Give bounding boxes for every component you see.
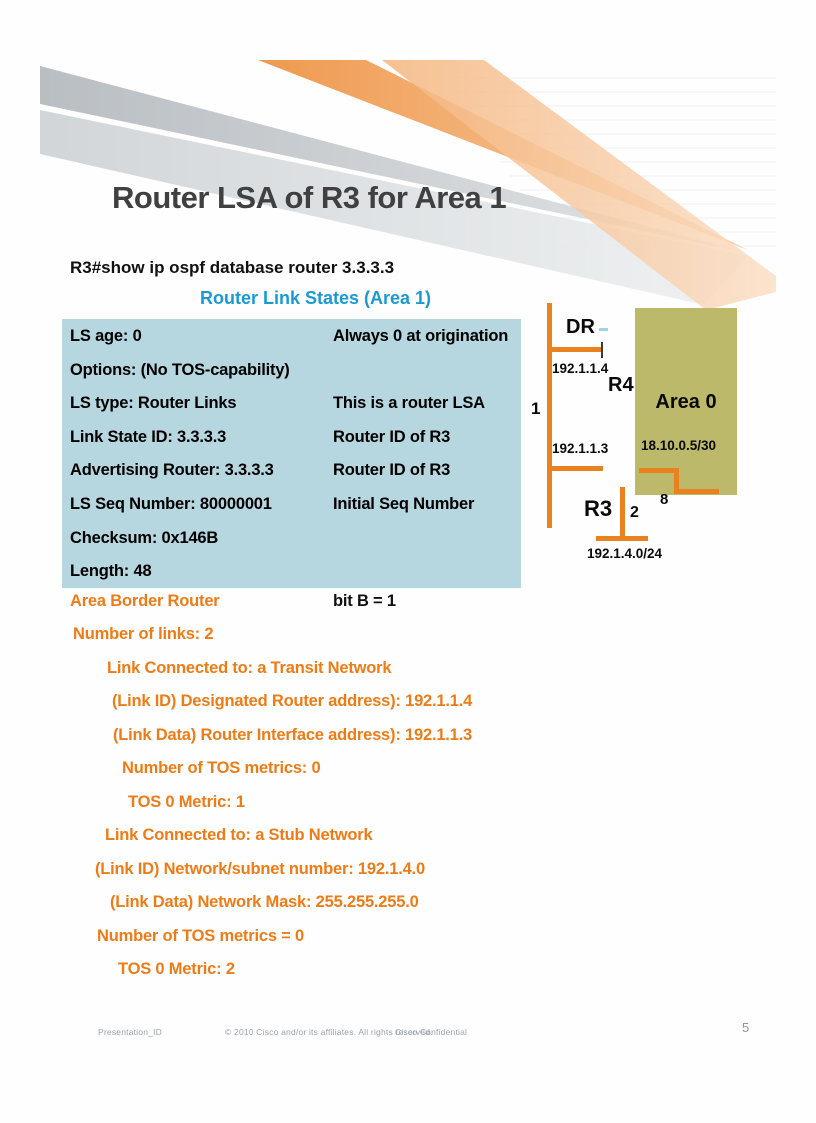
lsa-field: LS age: 0 xyxy=(70,327,333,361)
lsa-annotation: Router ID of R3 xyxy=(333,428,521,462)
dr-label: DR xyxy=(566,316,595,339)
footer-presentation-id: Presentation_ID xyxy=(98,1027,162,1037)
lsa-detail-line: Number of TOS metrics: 0 xyxy=(122,759,320,778)
lsa-detail-line: Number of links: 2 xyxy=(73,625,213,644)
lsa-annotation xyxy=(333,361,521,395)
transit-segment-line xyxy=(547,303,552,528)
slide: Router LSA of R3 for Area 1 R3#show ip o… xyxy=(0,0,816,1123)
dr-ip-label: 192.1.1.4 xyxy=(552,361,608,376)
lsa-detail-line: (Link ID) Designated Router address): 19… xyxy=(112,692,472,711)
r3-interface-ip-label: 192.1.1.3 xyxy=(552,441,608,456)
lsa-output-box: LS age: 0 Always 0 at origination Option… xyxy=(62,319,521,588)
cost-8-label: 8 xyxy=(660,491,668,508)
cost-2-label: 2 xyxy=(630,504,639,522)
area0-link-line-a xyxy=(639,468,679,473)
lsa-field: Checksum: 0x146B xyxy=(70,529,333,563)
stub-segment-line xyxy=(620,487,625,538)
lsa-detail-line: (Link Data) Network Mask: 255.255.255.0 xyxy=(110,893,419,912)
abr-annotation: bit B = 1 xyxy=(333,592,396,611)
abr-label: Area Border Router xyxy=(70,592,220,611)
stub-network-label: 192.1.4.0/24 xyxy=(587,546,662,561)
lsa-detail-line: TOS 0 Metric: 1 xyxy=(128,793,245,812)
lsa-annotation xyxy=(333,529,521,563)
lsa-field: Advertising Router: 3.3.3.3 xyxy=(70,461,333,495)
area0-link-line-c xyxy=(674,489,719,494)
lsa-annotation: Router ID of R3 xyxy=(333,461,521,495)
cli-command: R3#show ip ospf database router 3.3.3.3 xyxy=(70,258,394,278)
dr-link-line xyxy=(547,347,603,352)
lsa-annotation: This is a router LSA xyxy=(333,394,521,428)
section-heading: Router Link States (Area 1) xyxy=(200,288,431,309)
lsa-detail-line: (Link ID) Network/subnet number: 192.1.4… xyxy=(95,860,425,879)
r3-label: R3 xyxy=(584,496,612,522)
cost-1-label: 1 xyxy=(531,399,540,419)
r4-label: R4 xyxy=(608,374,634,397)
dr-segment-tick xyxy=(601,342,603,358)
page-title: Router LSA of R3 for Area 1 xyxy=(112,180,506,216)
area0-network-label: 18.10.0.5/30 xyxy=(641,438,716,453)
lsa-annotation: Always 0 at origination xyxy=(333,327,521,361)
lsa-field: Options: (No TOS-capability) xyxy=(70,361,333,395)
lsa-annotation: Initial Seq Number xyxy=(333,495,521,529)
lsa-detail-line: Link Connected to: a Transit Network xyxy=(107,659,391,678)
dr-highlight-dash xyxy=(599,328,608,331)
lsa-detail-line: (Link Data) Router Interface address): 1… xyxy=(113,726,472,745)
area0-label: Area 0 xyxy=(635,391,737,414)
lsa-detail-line: Link Connected to: a Stub Network xyxy=(105,826,373,845)
lsa-detail-line: Number of TOS metrics = 0 xyxy=(97,927,304,946)
lsa-field: LS Seq Number: 80000001 xyxy=(70,495,333,529)
lsa-field: Link State ID: 3.3.3.3 xyxy=(70,428,333,462)
lsa-annotation xyxy=(333,562,521,596)
page-number: 5 xyxy=(742,1020,749,1035)
footer-confidential: Cisco Confidential xyxy=(395,1027,467,1037)
lsa-field: LS type: Router Links xyxy=(70,394,333,428)
stub-network-line xyxy=(596,536,648,541)
r3-interface-link-line xyxy=(547,466,603,471)
lsa-detail-line: TOS 0 Metric: 2 xyxy=(118,960,235,979)
lsa-field: Length: 48 xyxy=(70,562,333,596)
